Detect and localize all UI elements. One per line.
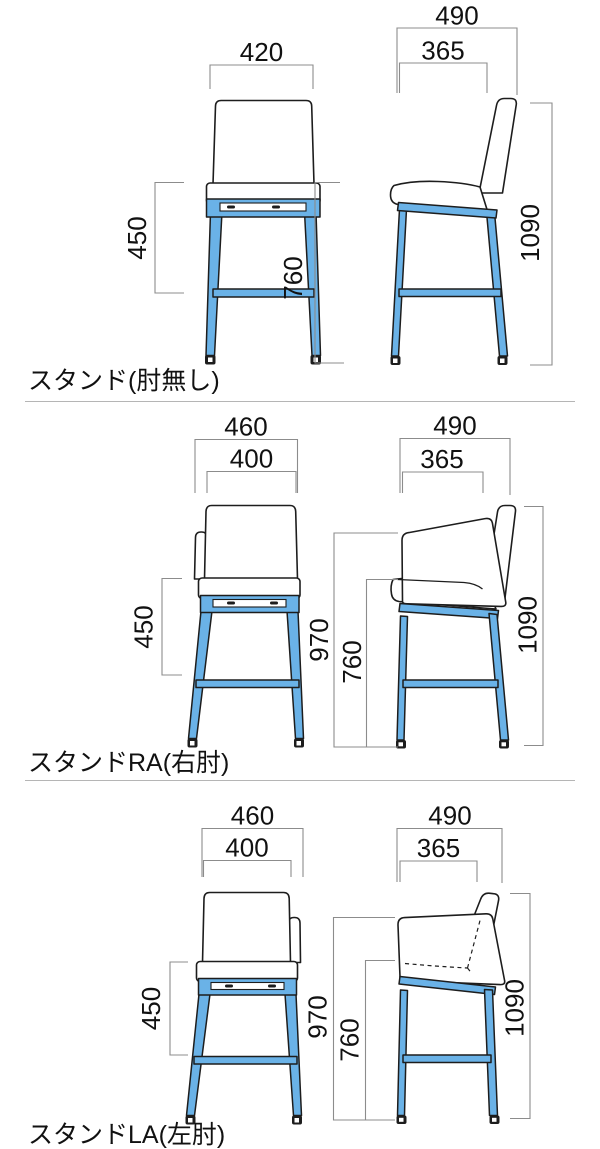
- seat-arm-panel-side: [398, 914, 505, 985]
- bracket-450: [162, 579, 182, 676]
- dim-seat-width: 400: [230, 444, 273, 474]
- dim-seat-to-footrest: 450: [136, 987, 166, 1030]
- screw-right: [268, 985, 276, 988]
- foot-left-inner: [190, 741, 195, 746]
- dim-seat-width: 400: [225, 833, 268, 863]
- dim-seat-height: 760: [278, 256, 308, 299]
- leg-right: [287, 611, 304, 739]
- bracket-400: [207, 472, 296, 494]
- foot-front-inner: [399, 742, 404, 746]
- front-leg-side: [392, 209, 407, 356]
- front-view-ra: [188, 506, 305, 748]
- bracket-365: [400, 63, 488, 93]
- footrest-side: [399, 289, 501, 297]
- screw-right: [272, 206, 280, 209]
- bracket-450: [170, 962, 188, 1055]
- front-leg-side: [397, 616, 408, 740]
- dim-side-depth: 490: [428, 801, 471, 831]
- front-view-la: [186, 893, 303, 1125]
- leg-left: [189, 611, 213, 739]
- backrest-side: [479, 99, 516, 194]
- screw-left: [225, 985, 233, 988]
- section-stand-la: 460 400 450 970 760 490 365 1090 スタンドLA(…: [0, 780, 600, 1149]
- bracket-365: [400, 861, 477, 882]
- stool-dimension-sheet: 420 450 490 365 760 1090 スタンド(肘無し): [0, 0, 600, 1149]
- back-leg-side: [487, 212, 508, 356]
- side-view-no-arm: [391, 99, 517, 366]
- footrest-bar: [194, 1057, 297, 1065]
- foot-back-inner: [492, 1118, 497, 1122]
- front-leg-side: [398, 990, 408, 1116]
- back-leg-side: [485, 990, 498, 1116]
- caption-no-arm: スタンド(肘無し): [28, 367, 220, 395]
- dim-seat-depth: 365: [417, 833, 460, 863]
- dim-seat-depth: 365: [420, 444, 463, 474]
- foot-right-inner: [295, 1118, 300, 1123]
- foot-front-inner: [399, 1118, 404, 1122]
- foot-back-inner: [500, 359, 505, 364]
- bracket-760: [367, 580, 399, 748]
- dim-armrest-height: 970: [304, 618, 334, 661]
- dim-side-depth: 490: [435, 1, 478, 31]
- caption-la: スタンドLA(左肘): [28, 1121, 225, 1149]
- bracket-400: [204, 861, 292, 878]
- foot-back-inner: [502, 742, 507, 746]
- screw-left: [227, 206, 235, 209]
- leg-left: [206, 212, 222, 356]
- dim-overall-width: 460: [231, 801, 274, 831]
- side-view-la: [397, 893, 505, 1124]
- dim-overall-height: 1090: [513, 596, 543, 654]
- side-view-ra: [391, 506, 516, 749]
- backrest: [203, 893, 291, 963]
- dim-seat-height: 760: [337, 640, 367, 683]
- dim-side-depth: 490: [433, 411, 476, 441]
- dim-seat-height: 760: [335, 1018, 365, 1061]
- leg-left: [187, 994, 211, 1116]
- dim-seat-to-footrest: 450: [129, 605, 159, 648]
- caption-ra: スタンドRA(右肘): [28, 749, 229, 777]
- bracket-450: [155, 183, 184, 294]
- foot-front-inner: [393, 359, 398, 364]
- dim-armrest-height: 970: [303, 995, 333, 1038]
- dim-seat-to-footrest: 450: [122, 216, 152, 259]
- footrest-bar: [196, 680, 299, 688]
- dim-front-width: 420: [240, 37, 283, 67]
- footrest-side: [403, 1055, 491, 1063]
- backrest: [205, 506, 298, 580]
- bracket-420: [210, 65, 313, 89]
- dim-overall-height: 1090: [500, 979, 530, 1037]
- foot-right-inner: [314, 358, 319, 363]
- dim-overall-width: 460: [224, 412, 267, 442]
- foot-right-inner: [297, 741, 302, 746]
- dim-seat-depth: 365: [421, 36, 464, 66]
- bracket-365: [403, 472, 484, 493]
- dim-overall-height: 1090: [515, 204, 545, 262]
- bracket-760: [366, 961, 396, 1121]
- armrest-panel-side: [402, 518, 506, 606]
- screw-left: [227, 602, 235, 605]
- footrest-side: [403, 680, 498, 688]
- section-stand-no-arm: 420 450 490 365 760 1090 スタンド(肘無し): [0, 0, 600, 401]
- backrest: [213, 101, 314, 185]
- foot-left-inner: [208, 358, 213, 363]
- screw-right: [270, 602, 278, 605]
- section-stand-ra: 460 400 450 970 760 490 365 1090 スタンドRA(…: [0, 401, 600, 780]
- back-leg-side: [489, 614, 509, 741]
- leg-right: [285, 994, 302, 1116]
- front-view-no-arm: [205, 101, 321, 365]
